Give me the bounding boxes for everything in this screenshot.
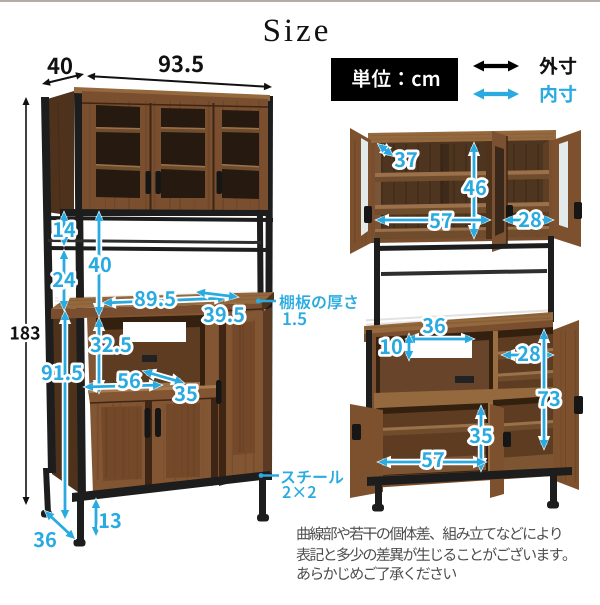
- svg-text:Size: Size: [263, 13, 332, 49]
